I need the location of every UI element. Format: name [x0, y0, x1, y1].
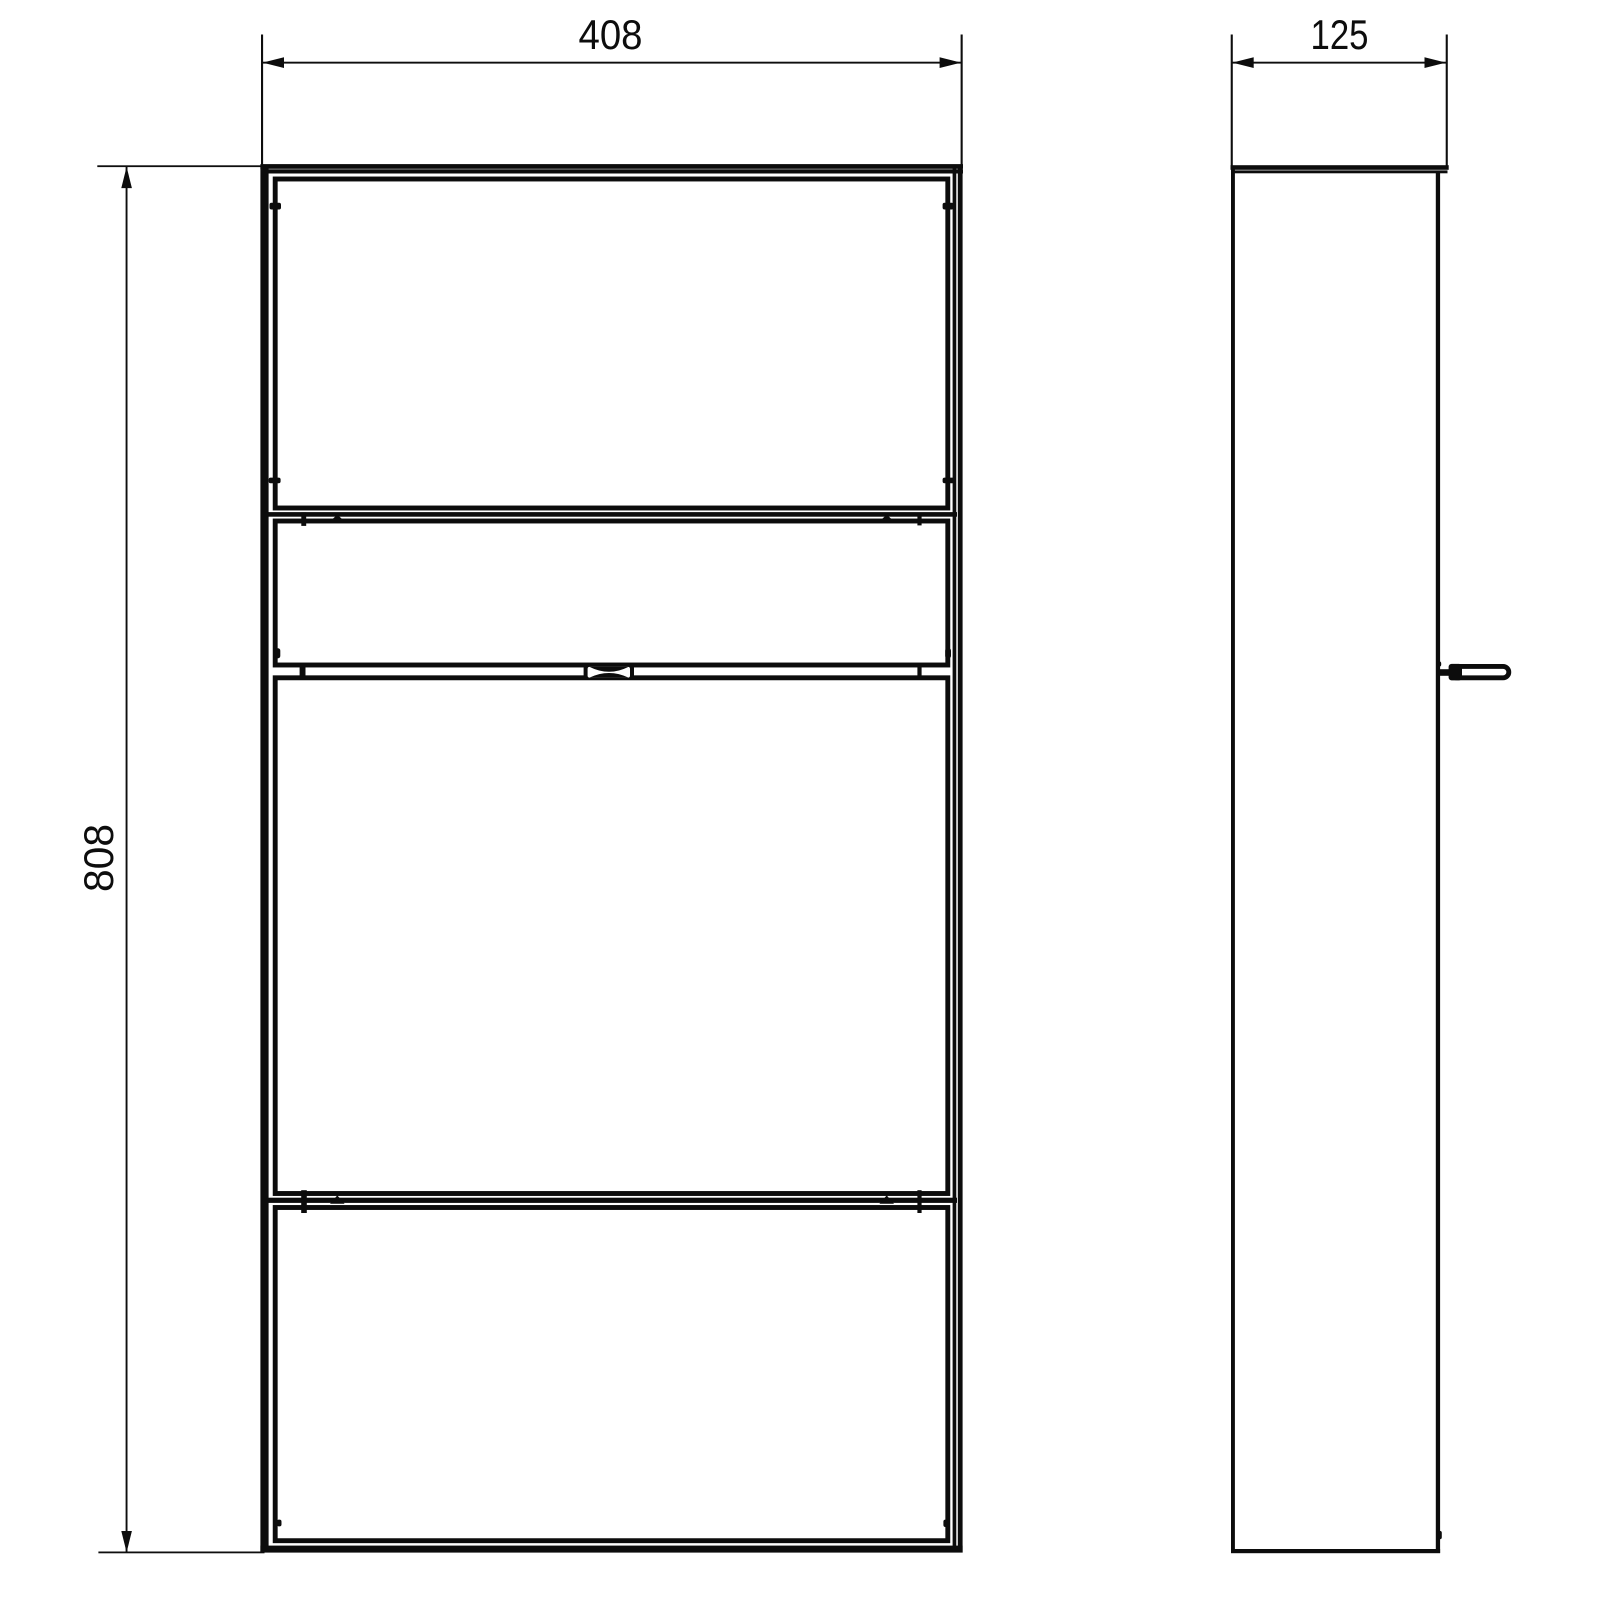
svg-text:408: 408: [579, 11, 643, 58]
svg-text:125: 125: [1311, 11, 1369, 58]
svg-text:808: 808: [75, 824, 122, 892]
